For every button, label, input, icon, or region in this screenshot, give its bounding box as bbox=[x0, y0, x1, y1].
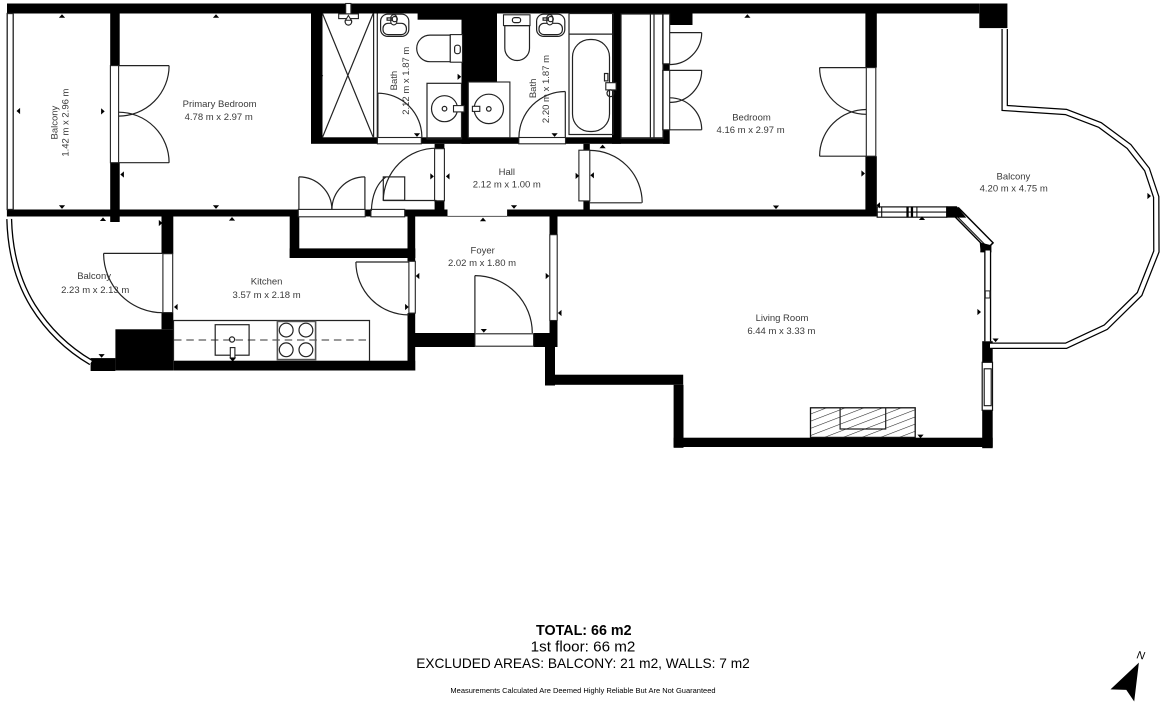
svg-text:1st floor: 66 m2: 1st floor: 66 m2 bbox=[531, 638, 636, 655]
svg-text:4.78 m x 2.97 m: 4.78 m x 2.97 m bbox=[185, 112, 253, 123]
svg-text:2.23 m x 2.13 m: 2.23 m x 2.13 m bbox=[61, 285, 129, 296]
svg-text:4.16 m x 2.97 m: 4.16 m x 2.97 m bbox=[717, 125, 785, 136]
svg-text:Bath: Bath bbox=[528, 79, 539, 99]
svg-text:Balcony: Balcony bbox=[50, 105, 61, 139]
svg-text:2.12 m x 1.87 m: 2.12 m x 1.87 m bbox=[401, 47, 412, 115]
svg-text:Foyer: Foyer bbox=[471, 246, 495, 257]
svg-text:3.57 m x 2.18 m: 3.57 m x 2.18 m bbox=[233, 290, 301, 301]
svg-text:6.44 m x 3.33 m: 6.44 m x 3.33 m bbox=[747, 326, 815, 337]
svg-text:Balcony: Balcony bbox=[77, 271, 111, 282]
svg-text:EXCLUDED AREAS: BALCONY: 21 m2: EXCLUDED AREAS: BALCONY: 21 m2, WALLS: 7… bbox=[416, 656, 749, 671]
svg-text:2.02 m x 1.80 m: 2.02 m x 1.80 m bbox=[448, 258, 516, 269]
svg-text:Kitchen: Kitchen bbox=[251, 277, 283, 288]
svg-text:2.20 m x 1.87 m: 2.20 m x 1.87 m bbox=[541, 55, 552, 123]
svg-text:TOTAL: 66 m2: TOTAL: 66 m2 bbox=[536, 623, 632, 639]
svg-text:Hall: Hall bbox=[499, 167, 515, 178]
svg-text:2.12 m x 1.00 m: 2.12 m x 1.00 m bbox=[473, 179, 541, 190]
svg-text:4.20 m x 4.75 m: 4.20 m x 4.75 m bbox=[980, 184, 1048, 195]
svg-text:Living Room: Living Room bbox=[756, 313, 809, 324]
svg-text:1.42 m x 2.96 m: 1.42 m x 2.96 m bbox=[61, 88, 72, 156]
svg-text:Balcony: Balcony bbox=[996, 172, 1030, 183]
svg-text:Bedroom: Bedroom bbox=[732, 113, 771, 124]
svg-text:Bath: Bath bbox=[389, 71, 400, 91]
svg-text:Primary Bedroom: Primary Bedroom bbox=[183, 99, 257, 110]
svg-text:Measurements Calculated Are De: Measurements Calculated Are Deemed Highl… bbox=[450, 686, 715, 695]
